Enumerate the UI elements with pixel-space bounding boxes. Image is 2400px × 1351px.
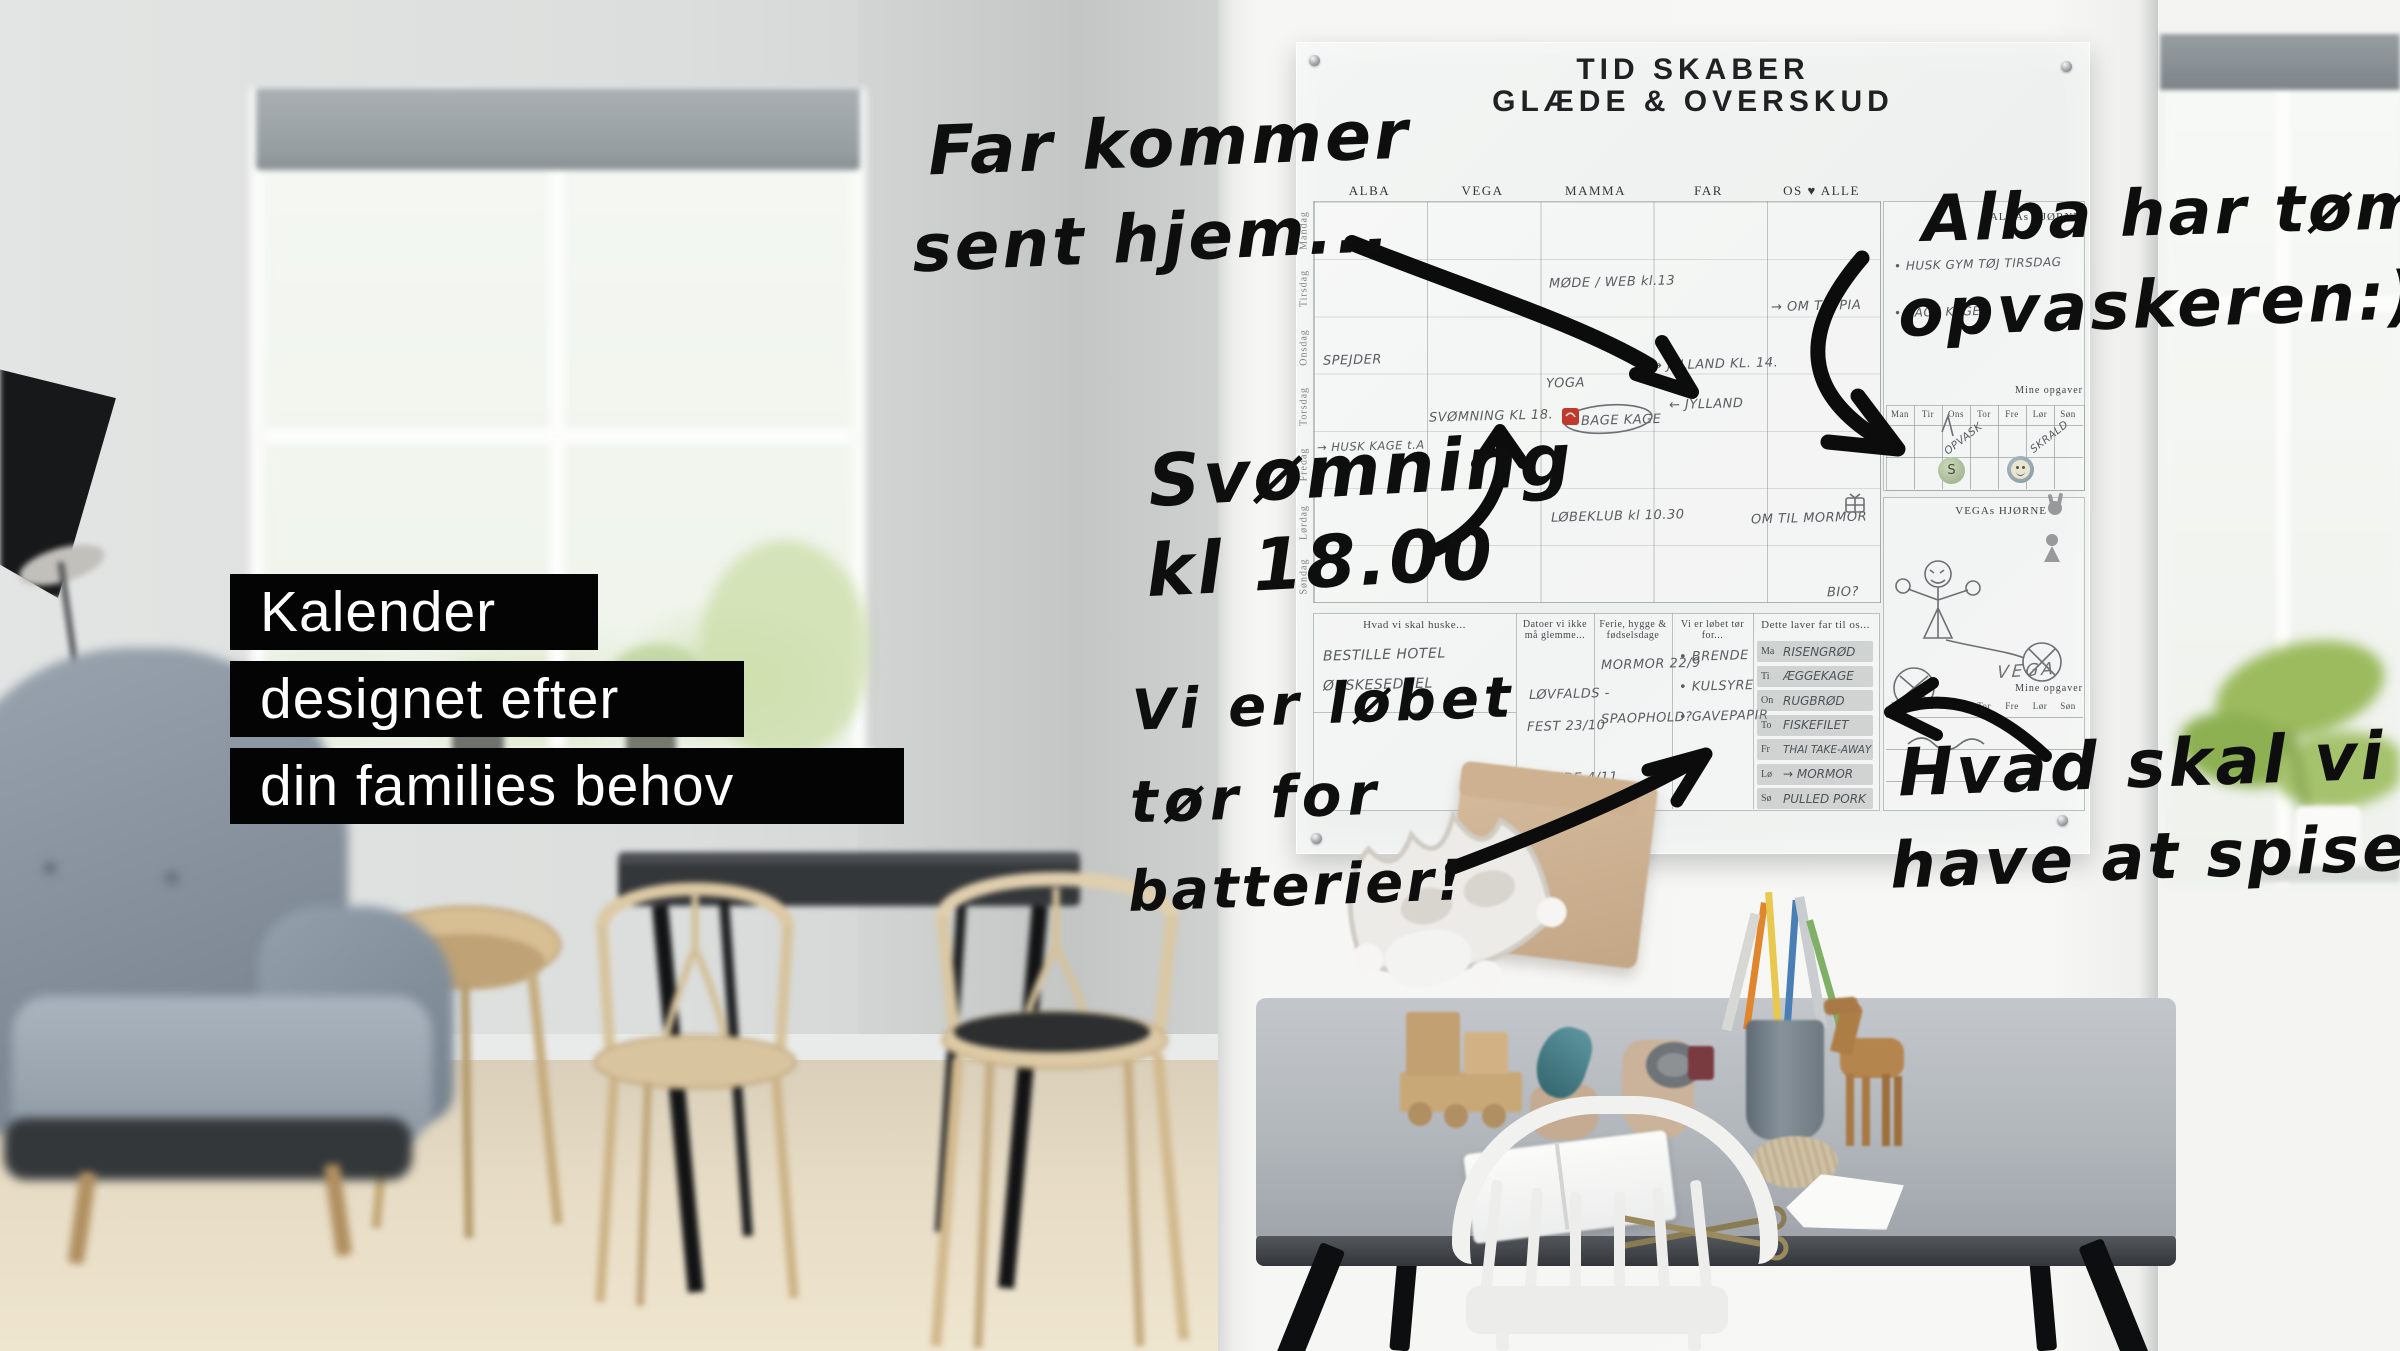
- headline-line3: din families behov: [230, 748, 904, 824]
- annotation-batterier-line3: batterier!: [1127, 848, 1466, 925]
- annotation-batterier-line2: tør for: [1129, 760, 1383, 837]
- annotation-batterier-line1: Vi er løbet: [1131, 665, 1517, 743]
- annotation-alba-line1: Alba har tømt: [1921, 169, 2400, 257]
- headline-text: din families behov: [260, 753, 734, 819]
- headline-line1: Kalender: [230, 574, 598, 650]
- annotation-far-line1: Far kommer: [927, 96, 1412, 192]
- marketing-photo: TID SKABER GLÆDE & OVERSKUD ALBA VEGA MA…: [0, 0, 2400, 1351]
- arrow-far: [1352, 243, 1650, 366]
- headline-text: Kalender: [260, 579, 496, 645]
- headline-line2: designet efter: [230, 661, 744, 737]
- arrow-batterier: [1452, 760, 1696, 868]
- headline-text: designet efter: [260, 666, 619, 732]
